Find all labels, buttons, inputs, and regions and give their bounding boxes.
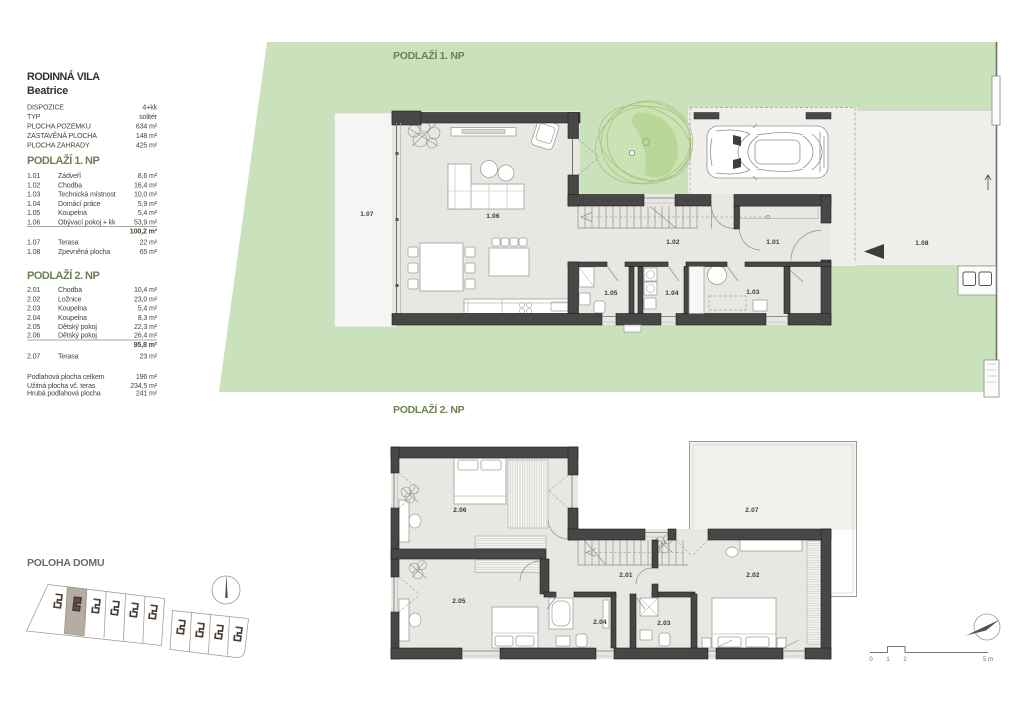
- svg-text:2.04: 2.04: [593, 619, 607, 626]
- svg-text:Zádveří: Zádveří: [58, 172, 81, 180]
- svg-text:2.02: 2.02: [27, 295, 40, 303]
- svg-text:2.07: 2.07: [27, 353, 40, 361]
- svg-text:65 m²: 65 m²: [140, 248, 158, 256]
- svg-text:Technická místnost: Technická místnost: [58, 191, 116, 199]
- svg-text:5,4 m²: 5,4 m²: [138, 209, 158, 217]
- svg-text:196 m²: 196 m²: [136, 373, 158, 381]
- svg-text:2.03: 2.03: [27, 305, 40, 313]
- svg-text:22,3 m²: 22,3 m²: [134, 323, 158, 331]
- svg-text:Chodba: Chodba: [58, 181, 82, 189]
- svg-text:1.03: 1.03: [746, 289, 760, 296]
- svg-text:1.04: 1.04: [665, 290, 679, 297]
- svg-text:425 m²: 425 m²: [136, 142, 158, 150]
- svg-text:5,4 m²: 5,4 m²: [138, 305, 158, 313]
- svg-text:1.01: 1.01: [766, 239, 780, 246]
- svg-text:16,4 m²: 16,4 m²: [134, 181, 158, 189]
- svg-text:1.07: 1.07: [27, 239, 40, 247]
- svg-text:53,9 m²: 53,9 m²: [134, 219, 158, 227]
- svg-text:Hrubá podlahová plocha: Hrubá podlahová plocha: [27, 390, 101, 398]
- svg-text:2.03: 2.03: [657, 620, 671, 627]
- svg-text:1.08: 1.08: [915, 240, 929, 247]
- svg-text:10,0 m²: 10,0 m²: [134, 191, 158, 199]
- svg-text:1.08: 1.08: [27, 248, 40, 256]
- svg-text:RODINNÁ VILA: RODINNÁ VILA: [27, 70, 100, 83]
- svg-text:2.04: 2.04: [27, 314, 40, 322]
- svg-text:95,8 m²: 95,8 m²: [134, 341, 158, 349]
- svg-text:Terasa: Terasa: [58, 353, 79, 361]
- svg-text:solitér: solitér: [139, 113, 158, 121]
- svg-text:5,9 m²: 5,9 m²: [138, 200, 158, 208]
- svg-text:2.06: 2.06: [453, 507, 467, 514]
- svg-text:PODLAŽÍ 2. NP: PODLAŽÍ 2. NP: [393, 403, 465, 416]
- svg-text:22 m²: 22 m²: [140, 239, 158, 247]
- svg-text:Obývací pokoj + kk: Obývací pokoj + kk: [58, 219, 116, 227]
- svg-text:26,4 m²: 26,4 m²: [134, 332, 158, 340]
- svg-text:23,0 m²: 23,0 m²: [134, 295, 158, 303]
- svg-text:PODLAŽÍ 1. NP: PODLAŽÍ 1. NP: [27, 154, 100, 167]
- svg-text:PLOCHA ZAHRADY: PLOCHA ZAHRADY: [27, 142, 90, 150]
- svg-text:1.04: 1.04: [27, 200, 40, 208]
- svg-text:DISPOZICE: DISPOZICE: [27, 104, 64, 112]
- svg-text:8,6 m²: 8,6 m²: [138, 172, 158, 180]
- svg-text:Dětský pokoj: Dětský pokoj: [58, 323, 97, 331]
- svg-text:Koupelna: Koupelna: [58, 305, 87, 313]
- svg-text:Podlahová plocha celkem: Podlahová plocha celkem: [27, 373, 105, 381]
- svg-text:5 m: 5 m: [983, 657, 993, 663]
- svg-text:4+kk: 4+kk: [142, 104, 157, 112]
- svg-text:1.06: 1.06: [486, 213, 500, 220]
- svg-text:241 m²: 241 m²: [136, 390, 158, 398]
- svg-text:Dětský pokoj: Dětský pokoj: [58, 332, 97, 340]
- svg-text:POLOHA DOMU: POLOHA DOMU: [27, 557, 104, 569]
- svg-text:1.05: 1.05: [604, 290, 618, 297]
- svg-text:148 m²: 148 m²: [136, 132, 158, 140]
- svg-text:2.01: 2.01: [619, 572, 633, 579]
- svg-text:2.07: 2.07: [745, 507, 759, 514]
- svg-text:1.07: 1.07: [360, 211, 374, 218]
- svg-text:Domácí práce: Domácí práce: [58, 200, 101, 208]
- svg-text:PLOCHA POZEMKU: PLOCHA POZEMKU: [27, 123, 91, 131]
- svg-text:8,3 m²: 8,3 m²: [138, 314, 158, 322]
- svg-text:2.01: 2.01: [27, 286, 40, 294]
- svg-text:2.05: 2.05: [452, 598, 466, 605]
- svg-text:1.02: 1.02: [666, 239, 680, 246]
- svg-text:634 m²: 634 m²: [136, 123, 158, 131]
- svg-text:Zpevněná plocha: Zpevněná plocha: [58, 248, 110, 256]
- svg-text:1.01: 1.01: [27, 172, 40, 180]
- svg-text:2.06: 2.06: [27, 332, 40, 340]
- svg-text:PODLAŽÍ 2. NP: PODLAŽÍ 2. NP: [27, 269, 100, 282]
- svg-text:100,2 m²: 100,2 m²: [130, 228, 158, 236]
- svg-text:Koupelna: Koupelna: [58, 209, 87, 217]
- svg-text:Koupelna: Koupelna: [58, 314, 87, 322]
- svg-text:Ložnice: Ložnice: [58, 295, 82, 303]
- svg-text:Terasa: Terasa: [58, 239, 79, 247]
- svg-text:1.06: 1.06: [27, 219, 40, 227]
- svg-text:2.05: 2.05: [27, 323, 40, 331]
- svg-text:Beatrice: Beatrice: [27, 85, 68, 97]
- svg-text:PODLAŽÍ 1. NP: PODLAŽÍ 1. NP: [393, 49, 465, 62]
- svg-text:1.03: 1.03: [27, 191, 40, 199]
- svg-text:ZASTAVĚNÁ PLOCHA: ZASTAVĚNÁ PLOCHA: [27, 131, 97, 140]
- svg-text:10,4 m²: 10,4 m²: [134, 286, 158, 294]
- svg-text:TYP: TYP: [27, 113, 41, 121]
- svg-text:23 m²: 23 m²: [140, 353, 158, 361]
- svg-text:Chodba: Chodba: [58, 286, 82, 294]
- svg-text:1.05: 1.05: [27, 209, 40, 217]
- svg-text:2.02: 2.02: [746, 572, 760, 579]
- svg-text:1.02: 1.02: [27, 181, 40, 189]
